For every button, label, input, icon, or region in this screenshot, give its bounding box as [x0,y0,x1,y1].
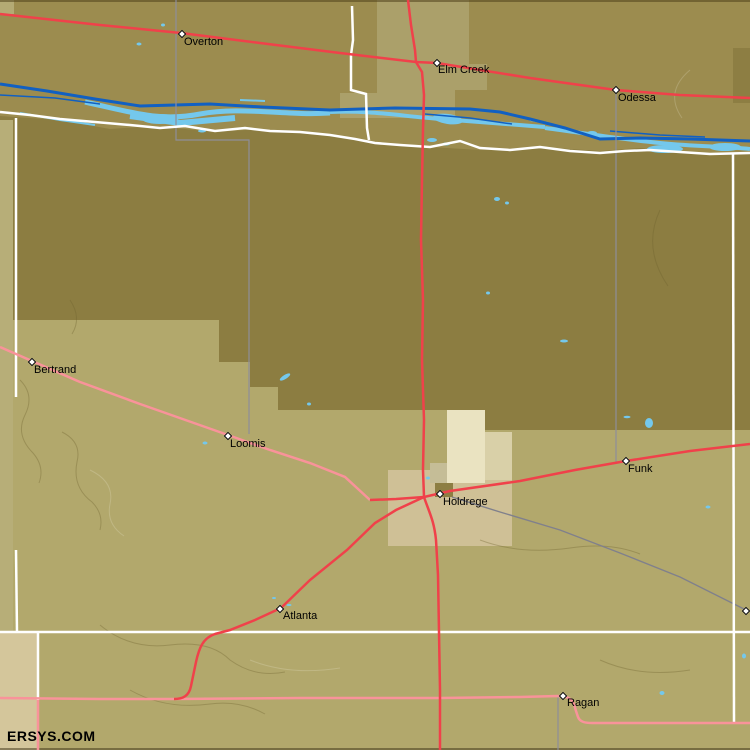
town-label-bertrand: Bertrand [34,365,76,376]
town-label-ragan: Ragan [567,698,599,709]
town-label-elm-creek: Elm Creek [438,65,489,76]
town-layer: OvertonElm CreekOdessaBertrandLoomisFunk… [0,0,750,750]
town-marker-ragan [559,692,567,700]
map-canvas: OvertonElm CreekOdessaBertrandLoomisFunk… [0,0,750,750]
town-label-holdrege: Holdrege [443,497,488,508]
town-marker-unlabeled [742,607,750,615]
town-label-odessa: Odessa [618,93,656,104]
town-label-loomis: Loomis [230,439,265,450]
town-label-atlanta: Atlanta [283,611,317,622]
town-label-funk: Funk [628,464,652,475]
town-label-overton: Overton [184,37,223,48]
source-watermark: ERSYS.COM [7,728,96,744]
